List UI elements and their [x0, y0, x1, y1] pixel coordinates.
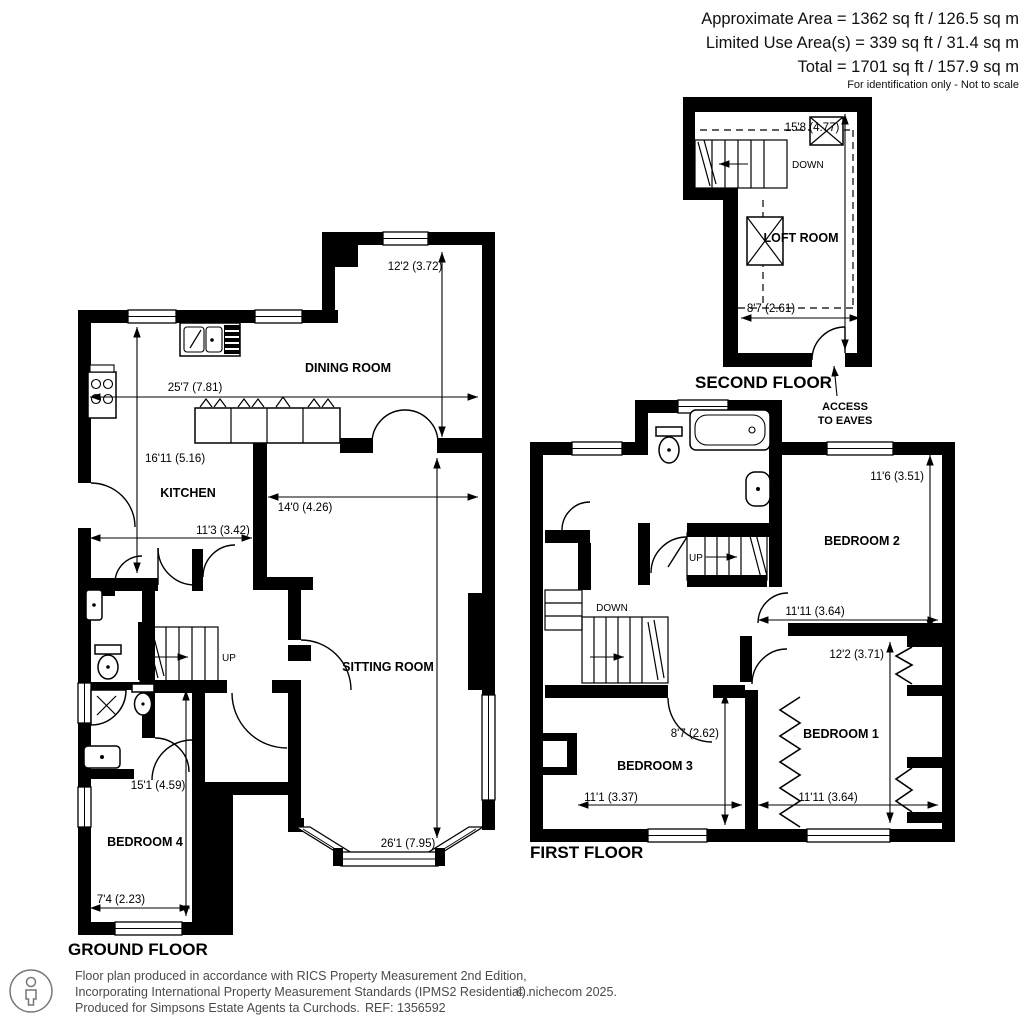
stair-break: [648, 622, 658, 680]
wall: [745, 690, 758, 842]
hob-burner: [104, 380, 113, 389]
hob: [88, 372, 116, 418]
access-label-line1: ACCESS: [822, 401, 868, 413]
counter-mark: [308, 399, 334, 407]
wall: [545, 685, 668, 698]
footer-ref: REF: 1356592: [365, 1001, 446, 1015]
bath-drain: [749, 427, 755, 433]
wall: [740, 636, 752, 682]
wall: [322, 245, 335, 323]
chimney-breast: [468, 593, 482, 690]
double-door-arc: [405, 410, 438, 443]
wall: [335, 245, 358, 267]
wall: [288, 590, 301, 640]
door-arc: [91, 483, 135, 527]
wall: [788, 623, 942, 636]
wall: [578, 543, 591, 590]
door-arc: [562, 502, 590, 530]
dim-text: 16'11 (5.16): [145, 453, 205, 465]
room-label-kitchen: KITCHEN: [160, 486, 216, 500]
sink-bowl: [206, 327, 222, 352]
floor-plan-page: Approximate Area = 1362 sq ft / 126.5 sq…: [0, 0, 1024, 1018]
dim-text: 26'1 (7.95): [381, 838, 436, 850]
room-label-bedroom2: BEDROOM 2: [824, 534, 900, 548]
room-label-dining: DINING ROOM: [305, 361, 391, 375]
toilet-dot: [106, 665, 110, 669]
wall: [545, 530, 590, 543]
approximate-area-text: Approximate Area = 1362 sq ft / 126.5 sq…: [701, 10, 1019, 28]
person-icon: [10, 970, 52, 1012]
hob-burner: [104, 395, 113, 404]
wall: [530, 442, 543, 842]
dim-text: 11'6 (3.51): [870, 471, 924, 483]
stairs-down-label: DOWN: [792, 160, 824, 171]
wall: [635, 400, 648, 455]
wall: [723, 188, 738, 367]
wall: [288, 690, 301, 827]
room-label-bedroom3: BEDROOM 3: [617, 759, 693, 773]
wall: [907, 636, 943, 647]
room-label-sitting: SITTING ROOM: [342, 660, 434, 674]
wall: [272, 680, 301, 693]
chimney-recess: [543, 741, 567, 767]
wall: [683, 97, 872, 112]
wall: [198, 782, 301, 795]
hob-burner: [92, 395, 101, 404]
wall: [192, 693, 205, 935]
first-bathroom-fixtures: [656, 410, 770, 506]
total-area-text: Total = 1701 sq ft / 157.9 sq m: [797, 58, 1019, 76]
first-floor-label: FIRST FLOOR: [530, 843, 643, 862]
limited-use-area-text: Limited Use Area(s) = 339 sq ft / 31.4 s…: [706, 34, 1019, 52]
sink-drain: [210, 338, 214, 342]
dim-text: 8'7 (2.61): [747, 303, 795, 315]
dim-text: 8'7 (2.62): [671, 728, 719, 740]
stair-outline: [545, 590, 582, 630]
basin-tap: [756, 487, 760, 491]
wall: [687, 575, 767, 587]
door-opening: [78, 483, 91, 528]
door-arc: [812, 327, 845, 360]
dim-text: 11'11 (3.64): [798, 792, 857, 804]
room-label-bedroom1: BEDROOM 1: [803, 727, 879, 741]
wall: [530, 829, 955, 842]
first-floor-plan: UP DOWN: [530, 400, 955, 862]
wall: [638, 523, 650, 585]
wall: [78, 769, 134, 779]
second-floor-plan: DOWN 15'8 (4.77) 8'7 (2.61) LOFT ROOM SE…: [683, 97, 872, 427]
stairs-down-second: DOWN: [695, 140, 824, 188]
hob-controls: [90, 365, 114, 372]
counter-mark: [276, 397, 290, 407]
room-label-loft: LOFT ROOM: [764, 231, 839, 245]
wall: [683, 97, 695, 200]
wall: [907, 757, 943, 768]
wall: [907, 685, 943, 696]
toilet-dot: [667, 448, 671, 452]
toilet-cistern: [132, 684, 154, 692]
identification-note: For identification only - Not to scale: [847, 79, 1019, 91]
ground-floor-plan: UP: [68, 232, 495, 959]
dim-text: 15'1 (4.59): [131, 780, 186, 792]
footer-line2: Incorporating International Property Mea…: [75, 985, 529, 999]
window: [296, 827, 355, 855]
dim-text: 25'7 (7.81): [168, 382, 223, 394]
wall: [907, 812, 943, 823]
wall: [333, 848, 343, 866]
wall: [942, 442, 955, 842]
footer-copyright: © nichecom 2025.: [516, 985, 617, 999]
wall: [340, 438, 373, 453]
wardrobe-zigzag: [896, 647, 912, 684]
door-arc: [752, 649, 787, 684]
toilet-cistern: [95, 645, 121, 654]
counter-mark: [238, 399, 264, 407]
dim-text: 15'8 (4.77): [785, 122, 840, 134]
dim-text: 11'3 (3.42): [196, 525, 250, 537]
dim-text: 14'0 (4.26): [278, 502, 333, 514]
wall: [723, 353, 812, 367]
door-leaf: [668, 537, 687, 567]
dim-text: 12'2 (3.72): [388, 261, 443, 273]
toilet-cistern: [656, 427, 682, 436]
footer: Floor plan produced in accordance with R…: [10, 969, 617, 1015]
toilet-dot: [141, 702, 144, 705]
wall: [205, 795, 233, 935]
wall: [845, 353, 872, 367]
stair-break: [698, 142, 710, 186]
stairs-up-first: UP: [687, 533, 767, 580]
stairs-down-first: DOWN: [545, 590, 668, 683]
footer-line3: Produced for Simpsons Estate Agents ta C…: [75, 1001, 360, 1015]
stair-break: [756, 534, 767, 576]
dim-text: 11'11 (3.64): [785, 606, 844, 618]
person-icon-body: [26, 990, 36, 1005]
stair-break: [704, 140, 716, 184]
wall: [437, 438, 482, 453]
counter-mark: [200, 399, 226, 407]
footer-line1: Floor plan produced in accordance with R…: [75, 969, 527, 983]
chimney-breast: [288, 645, 311, 661]
ground-walls: [78, 232, 495, 935]
door-arc: [232, 693, 287, 748]
wall: [769, 400, 782, 587]
stair-break: [654, 620, 664, 678]
wall: [435, 848, 445, 866]
stair-break: [750, 536, 761, 578]
wall: [713, 685, 745, 698]
wall: [857, 97, 872, 367]
door-arc: [158, 548, 195, 585]
dim-text: 11'1 (3.37): [584, 792, 638, 804]
basin-tap: [92, 603, 96, 607]
ground-floor-label: GROUND FLOOR: [68, 940, 208, 959]
second-floor-label: SECOND FLOOR: [695, 373, 832, 392]
wardrobe-zigzag: [780, 697, 800, 827]
area-summary: Approximate Area = 1362 sq ft / 126.5 sq…: [701, 10, 1019, 91]
person-icon-head: [27, 978, 36, 987]
door-arc: [203, 545, 235, 577]
door-arc: [758, 593, 788, 623]
first-windows: [572, 400, 893, 842]
room-label-bedroom4: BEDROOM 4: [107, 835, 183, 849]
stairs-up-label: UP: [689, 553, 703, 564]
floor-plan-canvas: Approximate Area = 1362 sq ft / 126.5 sq…: [0, 0, 1024, 1018]
stairs-down-label: DOWN: [596, 603, 628, 614]
basin-tap: [100, 755, 104, 759]
dim-text: 12'2 (3.71): [829, 649, 884, 661]
dim-text: 7'4 (2.23): [97, 894, 145, 906]
access-arrow: [834, 366, 837, 396]
stairs-up-label: UP: [222, 653, 236, 664]
door-arc: [651, 537, 687, 573]
double-door-arc: [372, 410, 405, 443]
access-label-line2: TO EAVES: [818, 415, 873, 427]
wall: [253, 443, 267, 583]
hob-burner: [92, 380, 101, 389]
